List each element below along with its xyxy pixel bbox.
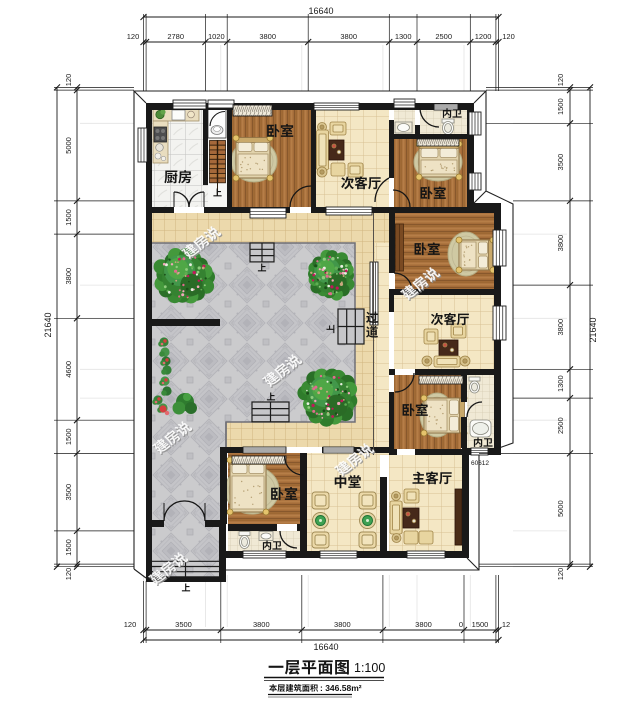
svg-text:3800: 3800 [556,319,565,336]
svg-text:1500: 1500 [64,428,73,445]
svg-text:1300: 1300 [395,32,412,41]
svg-text:120: 120 [502,32,515,41]
svg-text:0: 0 [459,620,463,629]
svg-text:60612: 60612 [471,460,489,467]
svg-text:120: 120 [124,620,137,629]
svg-text:1500: 1500 [556,98,565,115]
svg-text:1300: 1300 [556,375,565,392]
svg-text:1200: 1200 [475,32,492,41]
svg-text:5000: 5000 [64,137,73,154]
svg-text:3800: 3800 [340,32,357,41]
svg-text:12: 12 [502,620,510,629]
svg-text:3800: 3800 [259,32,276,41]
svg-text:2500: 2500 [556,417,565,434]
svg-text:120: 120 [64,568,73,581]
svg-text:2780: 2780 [167,32,184,41]
svg-text:16640: 16640 [313,642,338,652]
svg-text:5000: 5000 [556,500,565,517]
svg-text:21640: 21640 [588,317,598,342]
svg-text:16640: 16640 [308,6,333,16]
svg-text:3500: 3500 [556,154,565,171]
svg-text:1500: 1500 [472,620,489,629]
svg-text:3800: 3800 [334,620,351,629]
svg-text:1020: 1020 [208,32,225,41]
svg-text:3500: 3500 [64,484,73,501]
svg-text:3800: 3800 [64,268,73,285]
svg-text:120: 120 [64,74,73,87]
svg-text:: 346.58m²: : 346.58m² [320,683,362,693]
svg-text:1:100: 1:100 [354,661,385,675]
svg-text:3800: 3800 [415,620,432,629]
svg-text:120: 120 [556,568,565,581]
svg-text:3500: 3500 [175,620,192,629]
svg-text:1500: 1500 [64,209,73,226]
svg-text:3800: 3800 [556,235,565,252]
svg-text:120: 120 [127,32,140,41]
svg-text:2500: 2500 [435,32,452,41]
svg-text:4600: 4600 [64,361,73,378]
svg-text:1500: 1500 [64,539,73,556]
svg-text:120: 120 [556,74,565,87]
svg-text:21640: 21640 [43,312,53,337]
svg-text:3800: 3800 [253,620,270,629]
